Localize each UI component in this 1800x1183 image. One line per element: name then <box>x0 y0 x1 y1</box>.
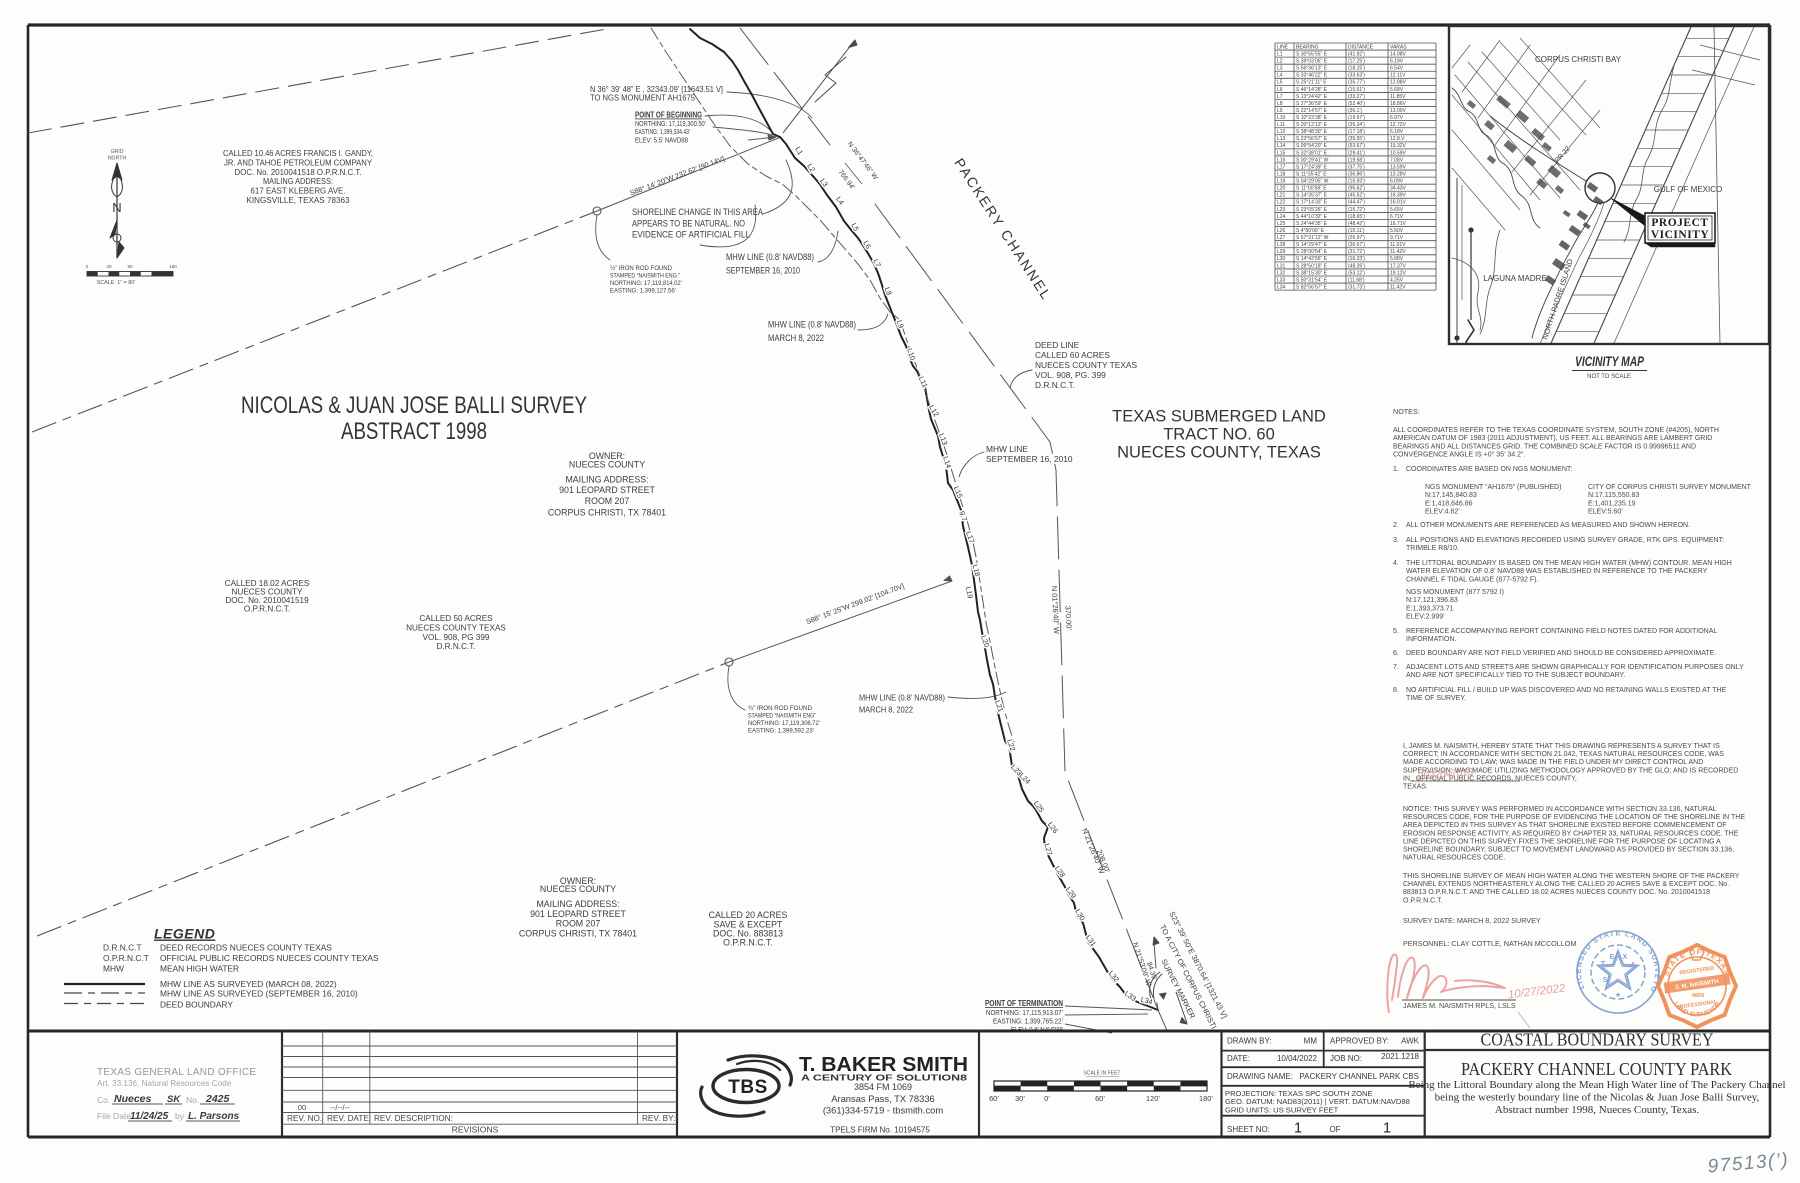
svg-text:(29.41’): (29.41’) <box>1348 150 1365 156</box>
svg-text:(33.27’): (33.27’) <box>1348 94 1365 100</box>
svg-text:SCALE IN FEET: SCALE IN FEET <box>1084 1071 1121 1077</box>
svg-text:S 44°10’32” E: S 44°10’32” E <box>1296 214 1328 220</box>
svg-text:ADJACENT LOTS AND STREETS: ADJACENT LOTS AND STREETS ARE SHOWN GRAP… <box>1406 664 1744 671</box>
svg-text:0: 0 <box>86 264 89 269</box>
svg-text:L31: L31 <box>1277 263 1286 269</box>
svg-text:13.00V: 13.00V <box>1390 108 1407 114</box>
svg-text:L26: L26 <box>1277 228 1286 234</box>
svg-text:S 30°55’55” E: S 30°55’55” E <box>1296 51 1328 57</box>
svg-text:CALLED 20 ACRES: CALLED 20 ACRES <box>709 910 788 920</box>
svg-text:ALL OTHER MONUMENTS ARE RE: ALL OTHER MONUMENTS ARE REFERENCED AS ME… <box>1406 522 1690 529</box>
svg-text:N:17,115,550.83: N:17,115,550.83 <box>1588 492 1639 499</box>
svg-text:L14: L14 <box>1277 143 1286 149</box>
svg-text:(48.42’): (48.42’) <box>1348 221 1365 227</box>
svg-text:NUECES COUNTY, TEXAS: NUECES COUNTY, TEXAS <box>1117 443 1321 461</box>
svg-text:(45.52’): (45.52’) <box>1348 193 1365 199</box>
svg-text:ELEV: 5.5’ NAVD88: ELEV: 5.5’ NAVD88 <box>635 137 688 144</box>
svg-text:L9: L9 <box>895 319 906 330</box>
svg-text:6.97V: 6.97V <box>1390 115 1404 121</box>
svg-text:S 23°05’26” E: S 23°05’26” E <box>1296 207 1328 213</box>
svg-text:E:1,393,373.71: E:1,393,373.71 <box>1406 605 1454 612</box>
svg-text:L18: L18 <box>971 563 983 577</box>
svg-text:(53.67’): (53.67’) <box>1348 143 1365 149</box>
svg-text:S 46°14’28” E: S 46°14’28” E <box>1296 87 1328 93</box>
svg-text:MARCH 8, 2022: MARCH 8, 2022 <box>768 333 824 343</box>
svg-text:11/24/25: 11/24/25 <box>130 1111 169 1122</box>
svg-text:MHW LINE: MHW LINE <box>986 444 1028 454</box>
svg-text:2021.1218: 2021.1218 <box>1381 1052 1419 1061</box>
svg-text:L22: L22 <box>1277 200 1286 206</box>
svg-text:MHW LINE (0.8’ NAVD88): MHW LINE (0.8’ NAVD88) <box>768 320 856 330</box>
svg-text:OF: OF <box>1329 1125 1340 1134</box>
svg-text:L23: L23 <box>1277 207 1286 213</box>
svg-text:6.09V: 6.09V <box>1390 179 1404 185</box>
svg-text:E:1,418,646.86: E:1,418,646.86 <box>1425 500 1473 507</box>
svg-text:12.88V: 12.88V <box>1390 80 1407 86</box>
svg-text:MAILING ADDRESS:: MAILING ADDRESS: <box>536 899 619 909</box>
svg-text:(41.92’): (41.92’) <box>1348 51 1365 57</box>
svg-text:Art. 33.136, Natural Resources: Art. 33.136, Natural Resources Code <box>97 1079 232 1088</box>
svg-text:L26: L26 <box>1046 820 1060 835</box>
svg-text:N 36°47’46” W: N 36°47’46” W <box>846 140 880 182</box>
svg-text:L2: L2 <box>1277 59 1283 65</box>
svg-text:O.P.R.N.C.T.: O.P.R.N.C.T. <box>244 605 290 614</box>
svg-text:INFORMATION.: INFORMATION. <box>1406 636 1456 643</box>
svg-text:L32: L32 <box>1277 270 1286 276</box>
svg-text:D.R.N.C.T.: D.R.N.C.T. <box>436 642 475 651</box>
svg-text:(11.68’): (11.68’) <box>1348 277 1365 283</box>
svg-text:STAMPED “NAISMITH ENG”: STAMPED “NAISMITH ENG” <box>748 713 816 720</box>
svg-text:4.: 4. <box>1393 560 1399 567</box>
svg-text:MARCH 8, 2022: MARCH 8, 2022 <box>859 705 913 715</box>
svg-text:NUECES COUNTY: NUECES COUNTY <box>540 884 616 894</box>
svg-text:L28: L28 <box>1277 242 1286 248</box>
svg-text:L18: L18 <box>1277 171 1286 177</box>
svg-text:--/--/--: --/--/-- <box>330 1103 350 1112</box>
svg-text:NUECES COUNTY TEXAS: NUECES COUNTY TEXAS <box>406 624 506 633</box>
svg-text:S 22°14’57” E: S 22°14’57” E <box>1296 108 1328 114</box>
svg-text:SHORELINE BOUNDARY, SUBJECT: SHORELINE BOUNDARY, SUBJECT TO MOVEMENT … <box>1403 847 1734 854</box>
svg-text:(15.11’): (15.11’) <box>1348 228 1365 234</box>
svg-text:11.42V: 11.42V <box>1390 249 1406 255</box>
svg-text:S88° 14’ 20”W 232.62’ [90.1: S88° 14’ 20”W 232.62’ [90.14V] <box>629 154 726 198</box>
svg-text:S 23°56’57” E: S 23°56’57” E <box>1296 136 1328 142</box>
svg-text:1: 1 <box>1294 1121 1302 1137</box>
svg-text:30’: 30’ <box>1015 1094 1025 1103</box>
svg-text:L4: L4 <box>1277 73 1283 79</box>
svg-text:S 33°46’22” E: S 33°46’22” E <box>1296 73 1328 79</box>
svg-text:L5: L5 <box>1277 80 1283 86</box>
svg-text:16.71V: 16.71V <box>1390 221 1407 227</box>
svg-text:ELEV:5.60’: ELEV:5.60’ <box>1588 509 1623 516</box>
svg-text:Co.: Co. <box>97 1095 110 1105</box>
svg-text:D.R.N.C.T: D.R.N.C.T <box>103 942 142 952</box>
svg-text:5.: 5. <box>1393 628 1399 635</box>
svg-text:CALLED 60 ACRES: CALLED 60 ACRES <box>1035 350 1110 360</box>
svg-text:REV. BY:: REV. BY: <box>642 1114 675 1123</box>
svg-text:COASTAL BOUNDARY SURVEY: COASTAL BOUNDARY SURVEY <box>1481 1030 1714 1050</box>
svg-text:PACKERY CHANNEL: PACKERY CHANNEL <box>951 155 1055 303</box>
svg-text:GRID UNITS: US SURVEY FEET: GRID UNITS: US SURVEY FEET <box>1225 1106 1339 1115</box>
svg-text:5.68V: 5.68V <box>1390 87 1404 93</box>
svg-text:L6: L6 <box>1277 87 1283 93</box>
svg-text:13.59V: 13.59V <box>1390 164 1407 170</box>
svg-text:NORTHING: 17,119,300.50’: NORTHING: 17,119,300.50’ <box>635 121 706 128</box>
svg-text:DATE:: DATE: <box>1227 1054 1250 1063</box>
svg-text:S: S <box>1603 977 1608 984</box>
svg-text:S 09°54’20” E: S 09°54’20” E <box>1296 143 1328 149</box>
svg-text:L33: L33 <box>1277 277 1286 283</box>
svg-text:7.: 7. <box>1393 664 1399 671</box>
svg-text:GULF OF MEXICO: GULF OF MEXICO <box>1654 185 1722 194</box>
svg-text:MHW LINE AS SURVEYED (MARCH 08: MHW LINE AS SURVEYED (MARCH 08, 2022) <box>160 979 337 989</box>
svg-text:TEXAS GENERAL LAND OFFICE: TEXAS GENERAL LAND OFFICE <box>97 1067 256 1078</box>
svg-text:L27: L27 <box>1277 235 1286 241</box>
svg-text:L7: L7 <box>1277 94 1283 100</box>
svg-text:MHW LINE (0.8’ NAVD88): MHW LINE (0.8’ NAVD88) <box>726 252 814 262</box>
svg-text:L17: L17 <box>1277 164 1286 170</box>
svg-text:S 28°50’18” E: S 28°50’18” E <box>1296 263 1328 269</box>
svg-text:(19.68’): (19.68’) <box>1348 157 1365 163</box>
svg-text:SHORELINE CHANGE IN THIS AREA: SHORELINE CHANGE IN THIS AREA <box>632 207 764 217</box>
svg-text:N:17,121,396.83: N:17,121,396.83 <box>1406 597 1458 604</box>
svg-text:AWK: AWK <box>1401 1036 1420 1045</box>
svg-text:97513(’): 97513(’) <box>1707 1149 1790 1177</box>
svg-text:VICINITY MAP: VICINITY MAP <box>1575 353 1644 369</box>
svg-text:(16.93’): (16.93’) <box>1348 179 1365 185</box>
svg-text:BEARING: BEARING <box>1296 44 1319 50</box>
svg-text:TIME OF SURVEY.: TIME OF SURVEY. <box>1406 695 1466 702</box>
svg-text:I, JAMES M. NAISMITH, HERE: I, JAMES M. NAISMITH, HEREBY STATE THAT … <box>1403 743 1720 750</box>
svg-text:(30.57’): (30.57’) <box>1348 242 1365 248</box>
svg-text:Being the Littoral Boundary al: Being the Littoral Boundary along the Me… <box>1408 1079 1785 1091</box>
svg-text:S 14°42’56” E: S 14°42’56” E <box>1296 256 1328 262</box>
svg-text:80: 80 <box>127 264 133 269</box>
svg-text:ALL POSITIONS AND ELEVATION: ALL POSITIONS AND ELEVATIONS RECORDED US… <box>1406 537 1724 544</box>
svg-text:6.19V: 6.19V <box>1390 59 1404 65</box>
svg-text:(15.61’): (15.61’) <box>1348 87 1365 93</box>
svg-text:3.: 3. <box>1393 537 1399 544</box>
svg-text:60’: 60’ <box>1095 1094 1105 1103</box>
svg-text:AND ARE NOT SPECIFICALLY T: AND ARE NOT SPECIFICALLY TIED TO THE SUB… <box>1406 672 1625 679</box>
svg-text:N:17,145,840.83: N:17,145,840.83 <box>1425 492 1477 499</box>
svg-text:34.43V: 34.43V <box>1390 186 1407 192</box>
svg-text:CALLED 50 ACRES: CALLED 50 ACRES <box>419 614 493 623</box>
svg-text:10/04/2022: 10/04/2022 <box>1277 1054 1318 1063</box>
svg-text:2.: 2. <box>1393 522 1399 529</box>
svg-text:S 38°48’30” E: S 38°48’30” E <box>1296 129 1328 135</box>
svg-text:(33.63’): (33.63’) <box>1348 73 1365 79</box>
svg-text:S 56°36’13” E: S 56°36’13” E <box>1296 66 1328 72</box>
svg-text:(35.34’): (35.34’) <box>1348 122 1365 128</box>
svg-text:7.08V: 7.08V <box>1390 157 1404 163</box>
svg-text:CALLED 10.46 ACRES FRANCIS I.: CALLED 10.46 ACRES FRANCIS I. GANDY, <box>223 149 373 158</box>
svg-text:L27: L27 <box>1043 842 1055 856</box>
svg-text:L3: L3 <box>818 177 830 189</box>
svg-text:883813 O.P.R.N.C.T. AND THE: 883813 O.P.R.N.C.T. AND THE CALLED 18.02… <box>1403 889 1710 896</box>
svg-text:L34: L34 <box>1277 284 1286 290</box>
svg-text:STAMPED “NAISMITH ENG.”: STAMPED “NAISMITH ENG.” <box>610 273 680 280</box>
svg-text:(36.86’): (36.86’) <box>1348 171 1365 177</box>
svg-text:CITY OF CORPUS CHRISTI SURVEY: CITY OF CORPUS CHRISTI SURVEY MONUMENT <box>1588 484 1752 491</box>
svg-text:L24: L24 <box>1277 214 1286 220</box>
svg-text:Nueces: Nueces <box>114 1093 152 1105</box>
svg-text:MADE ACCORDING TO LAW; WAS: MADE ACCORDING TO LAW; WAS MADE IN THE F… <box>1403 759 1703 766</box>
svg-text:CORPUS CHRISTI, TX 78401: CORPUS CHRISTI, TX 78401 <box>519 929 637 939</box>
svg-text:PERSONNEL: CLAY COTTLE, NAT: PERSONNEL: CLAY COTTLE, NATHAN MCCOLLOM <box>1403 939 1576 948</box>
svg-text:(15.72’): (15.72’) <box>1348 207 1365 213</box>
svg-text:S 24°44’35” E: S 24°44’35” E <box>1296 221 1328 227</box>
svg-text:12.8.V: 12.8.V <box>1390 136 1405 142</box>
svg-text:L10: L10 <box>905 347 917 361</box>
svg-text:File Date: File Date <box>97 1111 131 1121</box>
svg-text:REFERENCE ACCOMPANYING REPOR: REFERENCE ACCOMPANYING REPORT CONTAINING… <box>1406 628 1717 635</box>
svg-text:REV. DESCRIPTION:: REV. DESCRIPTION: <box>374 1114 453 1123</box>
svg-text:PACKERY CHANNEL PARK CBS: PACKERY CHANNEL PARK CBS <box>1299 1072 1419 1081</box>
svg-text:S 25°21’11” E: S 25°21’11” E <box>1296 80 1327 86</box>
svg-text:(16.33’): (16.33’) <box>1348 256 1365 262</box>
svg-text:4.25V: 4.25V <box>1390 277 1404 283</box>
svg-text:L10: L10 <box>1277 115 1286 121</box>
svg-text:L22: L22 <box>1005 738 1018 752</box>
svg-text:Aransas Pass, TX 78336: Aransas Pass, TX 78336 <box>831 1093 935 1104</box>
svg-text:8.: 8. <box>1393 687 1399 694</box>
svg-text:11.01V: 11.01V <box>1390 242 1406 248</box>
svg-text:L8: L8 <box>1277 101 1283 107</box>
svg-text:NORTH: NORTH <box>108 156 127 162</box>
svg-text:CONVERGENCE ANGLE IS +0° 3: CONVERGENCE ANGLE IS +0° 35’ 34.2”. <box>1393 451 1525 459</box>
svg-text:L4: L4 <box>834 195 846 207</box>
svg-text:Abstract number 1998, Nueces C: Abstract number 1998, Nueces County, Tex… <box>1495 1104 1699 1116</box>
svg-text:NOTES:: NOTES: <box>1393 407 1420 416</box>
svg-text:5.65V: 5.65V <box>1390 207 1404 213</box>
svg-text:L14: L14 <box>941 455 953 469</box>
svg-text:901 LEOPARD STREET: 901 LEOPARD STREET <box>559 485 655 495</box>
svg-text:VICINITY: VICINITY <box>1651 229 1710 241</box>
svg-text:N 01°26’40” W: N 01°26’40” W <box>1050 586 1062 635</box>
svg-text:40: 40 <box>106 264 112 269</box>
svg-text:18.86V: 18.86V <box>1390 101 1407 107</box>
svg-text:¾” IRON ROD FOUND: ¾” IRON ROD FOUND <box>748 705 812 712</box>
svg-text:L1: L1 <box>1277 51 1283 57</box>
svg-text:(44.47’): (44.47’) <box>1348 200 1365 206</box>
svg-text:SK: SK <box>167 1094 181 1105</box>
svg-text:L21: L21 <box>1277 193 1286 199</box>
svg-text:NO ARTIFICIAL FILL / BUILD: NO ARTIFICIAL FILL / BUILD UP WAS DISCOV… <box>1406 687 1727 694</box>
svg-text:THIS SHORELINE SURVEY OF M: THIS SHORELINE SURVEY OF MEAN HIGH WATER… <box>1403 873 1740 880</box>
svg-text:S 50°31’54” E: S 50°31’54” E <box>1296 277 1328 283</box>
svg-text:5.88V: 5.88V <box>1390 256 1404 262</box>
svg-text:A: A <box>1630 962 1635 969</box>
svg-text:PACKERY CHANNEL COUNTY PARK: PACKERY CHANNEL COUNTY PARK <box>1461 1059 1732 1079</box>
svg-text:VARAS: VARAS <box>1390 44 1407 50</box>
svg-text:LINE DEPICTED ON THIS SURV: LINE DEPICTED ON THIS SURVEY FIXES THE S… <box>1403 838 1721 845</box>
svg-text:TRACT NO. 60: TRACT NO. 60 <box>1163 426 1275 444</box>
svg-text:REV. NO.: REV. NO. <box>287 1114 322 1123</box>
svg-text:NOT TO SCALE: NOT TO SCALE <box>1587 374 1631 380</box>
svg-text:(35.55’): (35.55’) <box>1348 136 1365 142</box>
svg-text:S 67°31’12” W: S 67°31’12” W <box>1296 235 1329 241</box>
svg-text:(18.65’): (18.65’) <box>1348 214 1365 220</box>
svg-text:O.P.R.N.C.T.: O.P.R.N.C.T. <box>723 938 773 948</box>
svg-text:(48.26’): (48.26’) <box>1348 263 1365 269</box>
svg-text:6.71V: 6.71V <box>1390 214 1404 220</box>
svg-text:BEARINGS AND ALL DISTANCES: BEARINGS AND ALL DISTANCES GRID. THE COM… <box>1393 443 1696 450</box>
svg-text:S 04°29’05” W: S 04°29’05” W <box>1296 179 1329 185</box>
svg-text:by: by <box>175 1111 185 1121</box>
svg-text:CHANNEL EXTENDS NORTHEASTERL: CHANNEL EXTENDS NORTHEASTERLY ALONG THE … <box>1403 881 1729 888</box>
svg-text:L30: L30 <box>1277 256 1286 262</box>
svg-text:(53.12’): (53.12’) <box>1348 270 1365 276</box>
svg-text:KINGSVILLE, TEXAS 78363: KINGSVILLE, TEXAS 78363 <box>247 196 351 205</box>
svg-text:60’: 60’ <box>989 1094 999 1103</box>
svg-text:TBS: TBS <box>728 1077 768 1098</box>
svg-text:S 11°00’58” E: S 11°00’58” E <box>1296 186 1327 192</box>
svg-text:L7: L7 <box>871 257 883 268</box>
svg-text:L3: L3 <box>1277 66 1283 72</box>
svg-text:180’: 180’ <box>1199 1094 1213 1103</box>
svg-text:CORPUS CHRISTI, TX 78401: CORPUS CHRISTI, TX 78401 <box>548 508 666 518</box>
svg-text:13.28V: 13.28V <box>1390 171 1407 177</box>
svg-text:L20: L20 <box>1277 186 1286 192</box>
svg-text:MEAN HIGH WATER: MEAN HIGH WATER <box>160 964 239 974</box>
svg-text:(36.1’): (36.1’) <box>1348 108 1363 114</box>
svg-text:NATURAL RESOURCES CODE.: NATURAL RESOURCES CODE. <box>1403 855 1505 862</box>
svg-text:REV. DATE:: REV. DATE: <box>327 1114 371 1123</box>
svg-text:L1: L1 <box>793 145 805 156</box>
svg-text:L30: L30 <box>1073 907 1087 922</box>
svg-text:L15: L15 <box>1277 150 1286 156</box>
svg-text:L12: L12 <box>1277 129 1286 135</box>
svg-text:ROOM 207: ROOM 207 <box>556 919 601 929</box>
svg-text:ALL COORDINATES REFER TO T: ALL COORDINATES REFER TO THE TEXAS COORD… <box>1393 427 1719 434</box>
svg-text:TO NGS MONUMENT AH1675: TO NGS MONUMENT AH1675 <box>590 94 696 103</box>
svg-text:ROOM 207: ROOM 207 <box>585 496 630 506</box>
svg-text:L20: L20 <box>979 634 991 648</box>
svg-text:AMERICAN DATUM OF 1983 (20: AMERICAN DATUM OF 1983 (2011 ADJUSTMENT)… <box>1393 435 1712 442</box>
svg-text:11.85V: 11.85V <box>1390 94 1406 100</box>
svg-text:T: T <box>1601 961 1606 968</box>
svg-text:766.94’: 766.94’ <box>836 169 856 192</box>
svg-text:S 82°56’57” E: S 82°56’57” E <box>1296 284 1328 290</box>
svg-text:DEED BOUNDARY ARE NOT FIEL: DEED BOUNDARY ARE NOT FIELD VERIFIED AND… <box>1406 650 1716 657</box>
svg-text:6.18V: 6.18V <box>1390 129 1404 135</box>
svg-text:(31.72’): (31.72’) <box>1348 249 1365 255</box>
svg-text:E: E <box>1610 954 1615 961</box>
svg-text:L25: L25 <box>1032 799 1046 814</box>
svg-text:S 32°38’01” E: S 32°38’01” E <box>1296 150 1328 156</box>
svg-text:DISTANCE: DISTANCE <box>1348 44 1374 50</box>
svg-text:O.P.R.N.C.T: O.P.R.N.C.T <box>103 953 149 963</box>
svg-text:16.39V: 16.39V <box>1390 193 1407 199</box>
svg-text:6.: 6. <box>1393 650 1399 657</box>
svg-text:NORTHING: 17,119,306.72’: NORTHING: 17,119,306.72’ <box>748 720 820 727</box>
svg-text:L28: L28 <box>1053 864 1067 879</box>
svg-text:REGISTERED: REGISTERED <box>1679 966 1715 977</box>
svg-text:POINT OF TERMINATION: POINT OF TERMINATION <box>985 999 1063 1008</box>
svg-text:EASTING: 1,399,127.56’: EASTING: 1,399,127.56’ <box>610 288 676 295</box>
svg-text:NICOLAS & JUAN JOSE BALLI SURV: NICOLAS & JUAN JOSE BALLI SURVEY <box>241 392 587 419</box>
svg-text:L9: L9 <box>1277 108 1283 114</box>
svg-text:RESOURCES CODE, FOR THE PU: RESOURCES CODE, FOR THE PURPOSE OF EVIDE… <box>1403 814 1745 821</box>
svg-text:EASTING: 1,399,334.43’: EASTING: 1,399,334.43’ <box>635 129 690 136</box>
svg-text:11.42V: 11.42V <box>1390 284 1406 290</box>
svg-text:L6: L6 <box>861 239 873 250</box>
svg-text:S 14°29’47” E: S 14°29’47” E <box>1296 242 1328 248</box>
svg-text:TRIMBLE R8/10.: TRIMBLE R8/10. <box>1406 545 1459 552</box>
svg-text:MHW LINE AS SURVEYED (SEPTEMBE: MHW LINE AS SURVEYED (SEPTEMBER 16, 2010… <box>160 989 358 999</box>
svg-text:LAGUNA MADRE: LAGUNA MADRE <box>1483 274 1547 283</box>
svg-text:S 17°24’39” E: S 17°24’39” E <box>1296 164 1328 170</box>
svg-text:L11: L11 <box>917 375 930 389</box>
svg-text:16.01V: 16.01V <box>1390 200 1407 206</box>
svg-text:REVISIONS: REVISIONS <box>452 1125 499 1135</box>
svg-text:(26.97’): (26.97’) <box>1348 235 1365 241</box>
svg-text:L13: L13 <box>1277 136 1286 142</box>
svg-text:MAILING ADDRESS:: MAILING ADDRESS: <box>263 177 333 186</box>
svg-text:L16: L16 <box>1277 157 1286 163</box>
svg-text:EROSION RESPONSE ACTIVITY,: EROSION RESPONSE ACTIVITY, AS REQUIRED B… <box>1403 830 1739 837</box>
svg-text:L11: L11 <box>1277 122 1285 128</box>
svg-text:DRAWN BY:: DRAWN BY: <box>1227 1036 1272 1045</box>
svg-text:901 LEOPARD STREET: 901 LEOPARD STREET <box>530 909 626 919</box>
svg-text:617 EAST KLEBERG AVE.: 617 EAST KLEBERG AVE. <box>251 187 346 196</box>
svg-text:MHW: MHW <box>103 964 124 974</box>
svg-text:L2: L2 <box>805 162 817 173</box>
svg-text:S 4°50’06” E: S 4°50’06” E <box>1296 228 1325 234</box>
svg-text:LEGEND: LEGEND <box>154 926 215 942</box>
svg-text:JAMES M. NAISMITH RPLS, LS: JAMES M. NAISMITH RPLS, LSLS <box>1403 1001 1516 1010</box>
svg-text:EVIDENCE OF ARTIFICIAL FILL: EVIDENCE OF ARTIFICIAL FILL <box>632 230 750 240</box>
svg-text:160: 160 <box>169 264 177 269</box>
svg-text:SCALE: 1” = 80’: SCALE: 1” = 80’ <box>97 280 136 286</box>
svg-text:TEXAS SUBMERGED LAND: TEXAS SUBMERGED LAND <box>1112 408 1326 426</box>
svg-text:TPELS FIRM No. 10194575: TPELS FIRM No. 10194575 <box>830 1126 930 1135</box>
svg-text:PROJECT: PROJECT <box>1651 217 1708 229</box>
svg-text:SEPTEMBER 16, 2010: SEPTEMBER 16, 2010 <box>726 266 800 276</box>
svg-text:MAILING ADDRESS:: MAILING ADDRESS: <box>565 475 648 485</box>
svg-text:AREA DEPICTED IN THIS SURV: AREA DEPICTED IN THIS SURVEY AS THAT SHO… <box>1403 822 1727 829</box>
svg-text:S 13°24’42” E: S 13°24’42” E <box>1296 94 1328 100</box>
svg-text:120’: 120’ <box>1146 1094 1160 1103</box>
svg-text:ELEV:2.999’: ELEV:2.999’ <box>1406 614 1445 621</box>
svg-text:½” IRON ROD FOUND: ½” IRON ROD FOUND <box>610 264 672 272</box>
svg-text:DEED RECORDS NUECES COUNTY TEX: DEED RECORDS NUECES COUNTY TEXAS <box>160 942 332 952</box>
svg-text:12.72V: 12.72V <box>1390 122 1407 128</box>
svg-text:APPEARS TO BE NATURAL. NO: APPEARS TO BE NATURAL. NO <box>632 218 745 228</box>
svg-text:S 17°14’33” E: S 17°14’33” E <box>1296 200 1328 206</box>
svg-text:VOL. 908, PG. 399: VOL. 908, PG. 399 <box>1035 370 1106 380</box>
svg-text:CORRECT; IN ACCORDANCE WITH: CORRECT; IN ACCORDANCE WITH SECTION 21.0… <box>1403 751 1724 758</box>
svg-text:S 10°23’38” E: S 10°23’38” E <box>1296 115 1328 121</box>
svg-text:DRAWING NAME:: DRAWING NAME: <box>1227 1072 1293 1081</box>
svg-text:10.59V: 10.59V <box>1390 150 1407 156</box>
svg-text:6.54V: 6.54V <box>1390 66 1404 72</box>
svg-text:ELEV:4.82’: ELEV:4.82’ <box>1425 509 1460 516</box>
svg-text:NOTICE: THIS SURVEY WAS: NOTICE: THIS SURVEY WAS PERFORMED IN ACC… <box>1403 806 1717 813</box>
svg-text:D.R.N.C.T.: D.R.N.C.T. <box>1035 380 1075 390</box>
svg-text:TEXAS.: TEXAS. <box>1403 784 1428 791</box>
svg-text:DEED BOUNDARY: DEED BOUNDARY <box>160 1000 233 1010</box>
svg-text:NORTHING: 17,119,814.02’: NORTHING: 17,119,814.02’ <box>610 280 682 287</box>
svg-text:(17.25’): (17.25’) <box>1348 59 1365 65</box>
svg-text:DEED LINE: DEED LINE <box>1035 340 1080 350</box>
svg-text:VOL. 908, PG 399: VOL. 908, PG 399 <box>423 633 490 642</box>
svg-text:A CENTURY OF SOLUTION8: A CENTURY OF SOLUTION8 <box>801 1073 967 1083</box>
svg-text:NGS MONUMENT (877 5792 I): NGS MONUMENT (877 5792 I) <box>1406 589 1504 596</box>
svg-text:WATER ELEVATION OF 0.8’: WATER ELEVATION OF 0.8’ NAVD88 WAS ESTAB… <box>1406 568 1708 575</box>
svg-text:JOB NO:: JOB NO: <box>1330 1054 1362 1063</box>
